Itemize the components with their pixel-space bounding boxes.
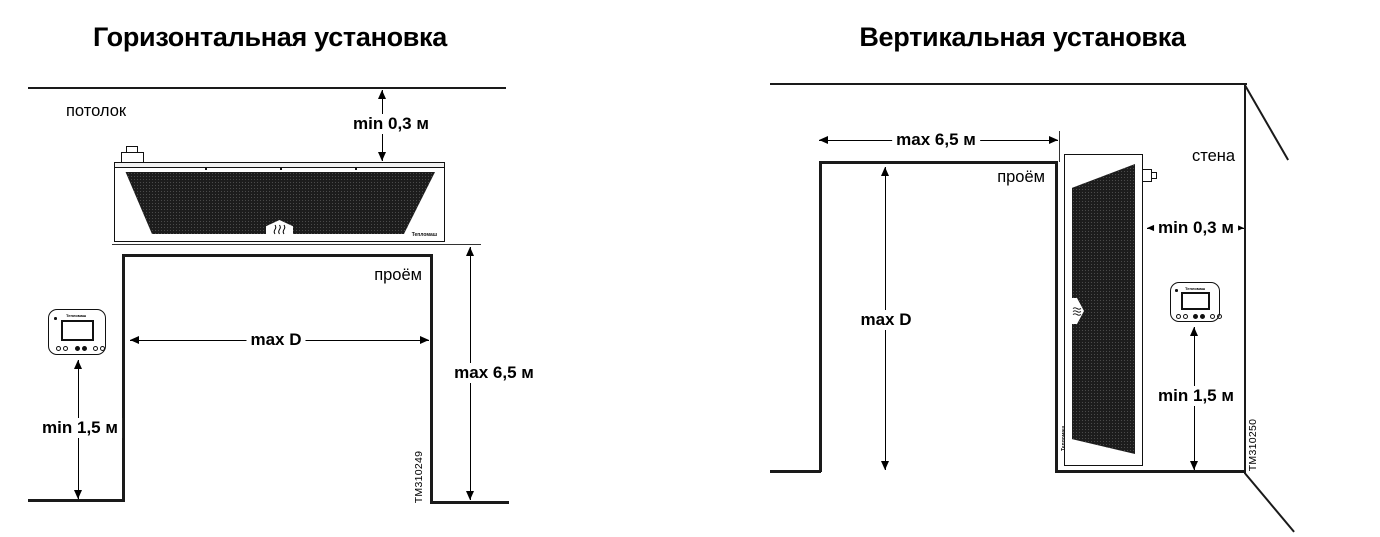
controller-brand-logo: Тепломаш [66,313,86,318]
doorway-left-jamb [819,161,822,472]
airflow-waves-icon [272,224,287,235]
wall-break-line-top [1244,85,1289,160]
opening-width-dimension-label: max 6,5 м [892,130,980,150]
controller-button [1176,314,1181,319]
arrow-head-down [378,152,386,161]
opening-label: проём [360,266,422,285]
arrow-head-down [74,490,82,499]
rail-tick [205,167,207,170]
arrow-head-up [378,90,386,99]
remote-controller: Тепломаш [1170,282,1220,322]
arrow-head-up [1190,327,1198,336]
floor-line-right [430,501,509,504]
wall-gap-dimension-label: min 0,3 м [1154,218,1238,238]
opening-height-dimension-label: max D [856,310,915,330]
opening-width-dimension-label: max D [246,330,305,350]
floor-line-left [28,499,125,502]
arrow-head-up [466,247,474,256]
controller-button [1183,314,1188,319]
rail-tick [280,167,282,170]
arrow-head-right [1049,136,1058,144]
controller-height-dimension-label: min 1,5 м [1154,386,1238,406]
arrow-head-left [819,136,828,144]
controller-button [75,346,80,351]
ceiling-gap-dimension-label: min 0,3 м [349,114,433,134]
controller-button [1193,314,1198,319]
doorway-right-jamb [430,254,433,503]
controller-button [63,346,68,351]
wall-label: стена [1192,147,1235,166]
doorway-left-jamb [122,254,125,501]
controller-button [1200,314,1205,319]
arrow-head-down [466,491,474,500]
ceiling-label: потолок [66,102,126,121]
airflow-waves-icon [1068,306,1083,317]
wall-line [1244,84,1246,474]
cable-gland-cap [1151,172,1157,179]
controller-buttons [56,346,105,351]
arrow-head-down [881,461,889,470]
floor-line-right [1055,470,1246,473]
doorway-right-jamb [1055,161,1058,472]
cable-gland-base [121,152,144,163]
remote-controller: Тепломаш [48,309,106,355]
doorway-lintel [122,254,433,257]
controller-button [1217,314,1222,319]
unit-bottom-extension-line [112,244,481,245]
controller-button [1210,314,1215,319]
vertical-installation-title: Вертикальная установка [830,22,1215,53]
controller-led [54,317,57,320]
arrow-head-down [1190,461,1198,470]
figure-id-vertical: TM310250 [1247,419,1259,472]
rail-tick [355,167,357,170]
unit-brand-logo: Тепломаш [1061,426,1067,451]
doorway-lintel [819,161,1058,164]
controller-brand-logo: Тепломаш [1185,286,1205,291]
unit-brand-logo: Тепломаш [412,232,437,238]
controller-buttons [1176,314,1222,319]
arrow-head-left [130,336,139,344]
controller-height-dimension-label: min 1,5 м [38,418,122,438]
ceiling-line [770,83,1247,85]
opening-label: проём [995,168,1045,187]
controller-screen [61,320,94,341]
installation-diagram-page: Горизонтальная установка потолок min 0,3… [0,0,1380,537]
controller-button [56,346,61,351]
opening-height-dimension-label: max 6,5 м [450,363,538,383]
controller-led [1175,289,1178,292]
horizontal-installation-title: Горизонтальная установка [75,22,465,53]
air-curtain-unit-horizontal: Тепломаш [114,162,445,242]
controller-screen [1181,292,1210,310]
figure-id-horizontal: TM310249 [413,451,425,504]
wall-break-line-bottom [1244,473,1294,533]
arrow-head-up [74,360,82,369]
arrow-head-up [881,167,889,176]
controller-button [93,346,98,351]
floor-line-left [770,470,821,473]
dimension-extension-line [1059,131,1060,162]
ceiling-line [28,87,506,89]
controller-button [82,346,87,351]
air-curtain-unit-vertical: Тепломаш [1064,154,1143,466]
arrow-head-right [420,336,429,344]
controller-button [100,346,105,351]
